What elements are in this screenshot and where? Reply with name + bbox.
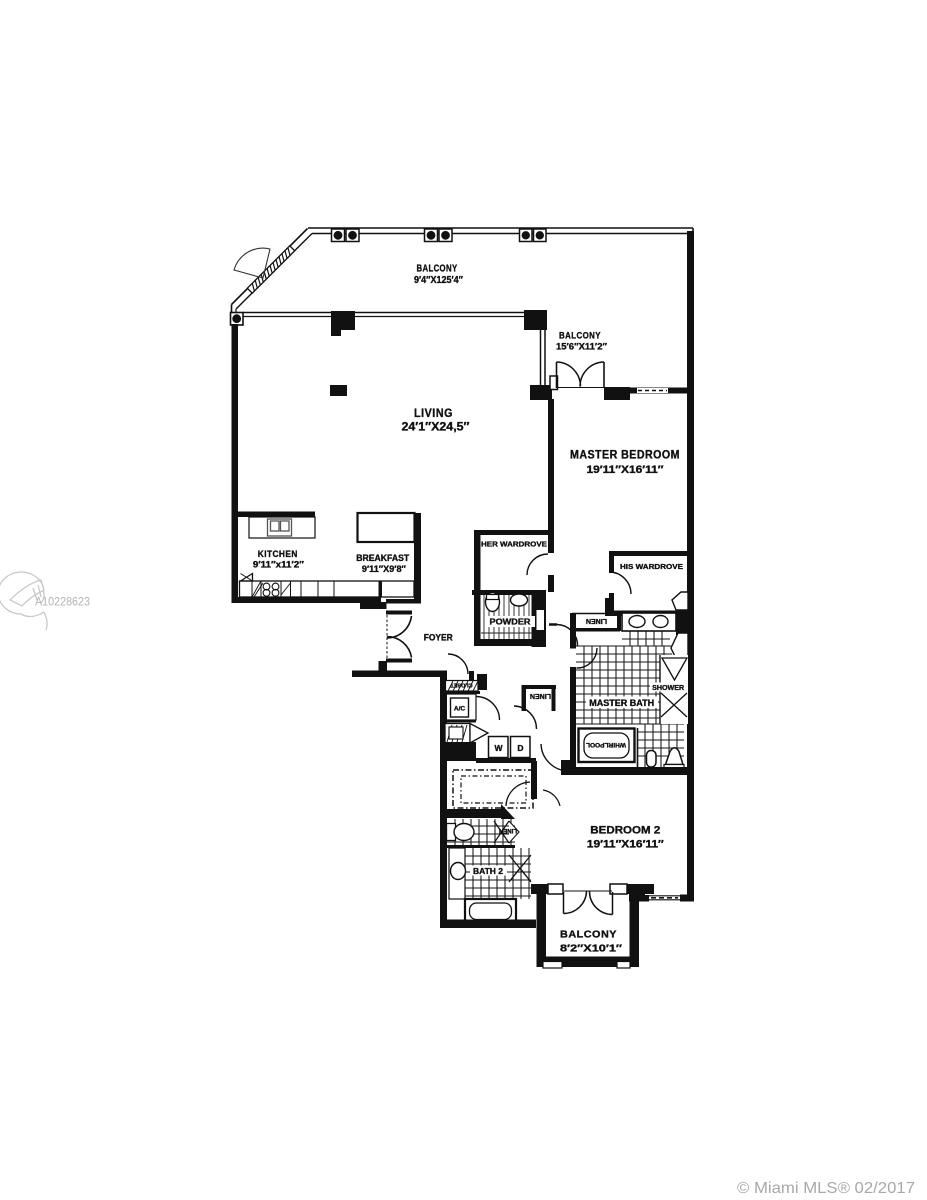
svg-text:BREAKFAST: BREAKFAST	[356, 553, 409, 564]
svg-text:MASTER BEDROOM: MASTER BEDROOM	[570, 450, 680, 462]
svg-text:FOYER: FOYER	[424, 633, 453, 643]
svg-text:LINEN: LINEN	[530, 692, 551, 699]
svg-text:CLOSET: CLOSET	[450, 682, 473, 688]
svg-text:BEDROOM 2: BEDROOM 2	[590, 825, 660, 837]
svg-text:A10228623: A10228623	[35, 597, 90, 609]
svg-text:MASTER BATH: MASTER BATH	[589, 698, 654, 709]
svg-text:8′2″X10′1″: 8′2″X10′1″	[560, 944, 622, 955]
svg-text:9′4″X125′4″: 9′4″X125′4″	[414, 275, 463, 286]
svg-text:9′11″X9′8″: 9′11″X9′8″	[362, 564, 407, 574]
svg-text:HER WARDROVE: HER WARDROVE	[481, 540, 547, 549]
svg-text:LINEN: LINEN	[499, 827, 517, 833]
svg-text:19′11″X16′11″: 19′11″X16′11″	[587, 464, 665, 476]
svg-text:HIS WARDROVE: HIS WARDROVE	[620, 562, 683, 571]
svg-text:KITCHEN: KITCHEN	[258, 549, 298, 560]
svg-text:D: D	[517, 743, 523, 753]
svg-text:WHIRLPOOL: WHIRLPOOL	[586, 741, 626, 748]
svg-text:15′6″X11′2″: 15′6″X11′2″	[556, 342, 607, 353]
svg-text:A/C: A/C	[454, 706, 466, 713]
svg-text:LINEN: LINEN	[586, 617, 607, 624]
svg-text:W: W	[494, 743, 503, 753]
svg-text:24′1″X24,5″: 24′1″X24,5″	[402, 422, 471, 434]
svg-text:9′11″x11′2″: 9′11″x11′2″	[253, 560, 305, 570]
svg-text:© Miami MLS® 02/2017: © Miami MLS® 02/2017	[737, 1180, 915, 1197]
svg-text:LIVING: LIVING	[414, 408, 453, 420]
svg-text:BALCONY: BALCONY	[560, 929, 617, 941]
svg-text:SHOWER: SHOWER	[652, 685, 684, 692]
svg-text:BALCONY: BALCONY	[417, 263, 458, 275]
svg-text:19′11″X16′11″: 19′11″X16′11″	[587, 839, 665, 851]
svg-text:BATH 2: BATH 2	[473, 867, 504, 876]
svg-text:POWDER: POWDER	[490, 618, 531, 627]
svg-text:BALCONY: BALCONY	[559, 331, 601, 342]
